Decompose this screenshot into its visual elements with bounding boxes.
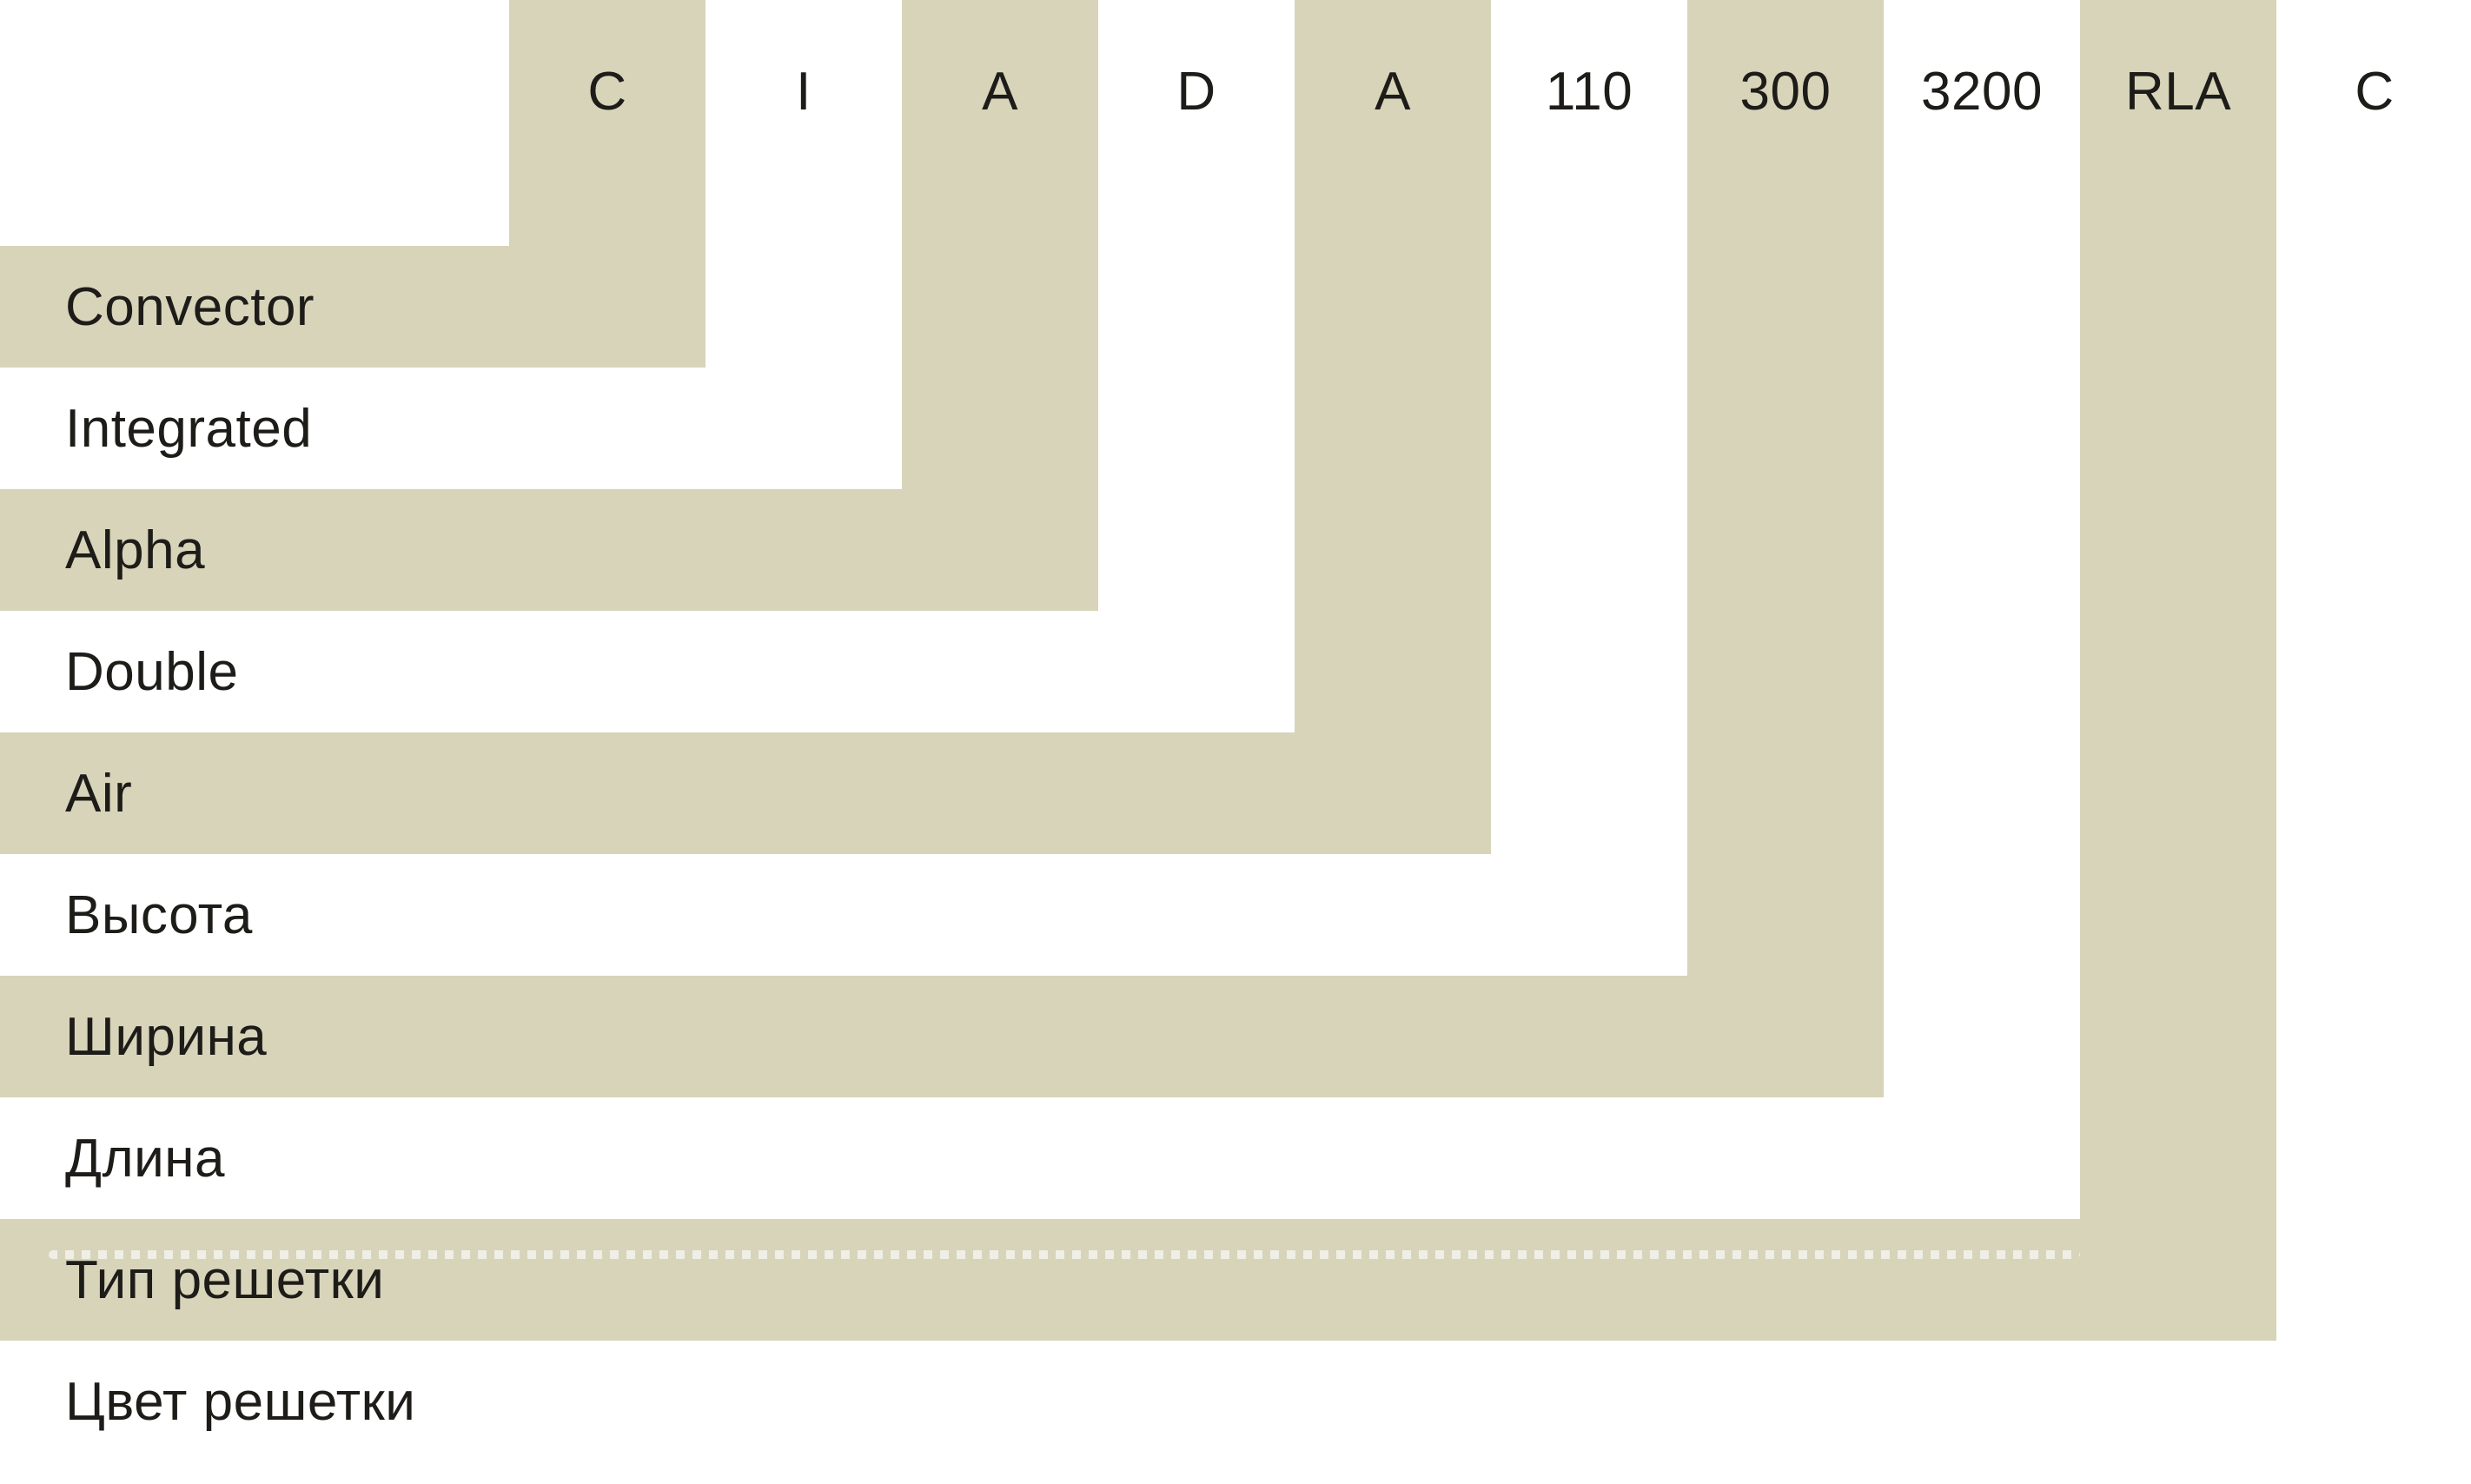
row-label: Integrated xyxy=(65,368,312,489)
row-label: Высота xyxy=(65,854,253,976)
row-label: Ширина xyxy=(65,976,267,1097)
row-labels-layer: ConvectorIntegratedAlphaDoubleAirВысотаШ… xyxy=(0,0,2471,1484)
row-label: Air xyxy=(65,732,132,854)
row-label: Double xyxy=(65,611,238,732)
code-diagram: CIADA1103003200RLAC ConvectorIntegratedA… xyxy=(0,0,2471,1484)
row-label: Тип решетки xyxy=(65,1219,384,1341)
row-label: Цвет решетки xyxy=(65,1341,415,1462)
row-label: Alpha xyxy=(65,489,205,611)
row-label: Convector xyxy=(65,246,315,368)
row-label: Длина xyxy=(65,1097,225,1219)
